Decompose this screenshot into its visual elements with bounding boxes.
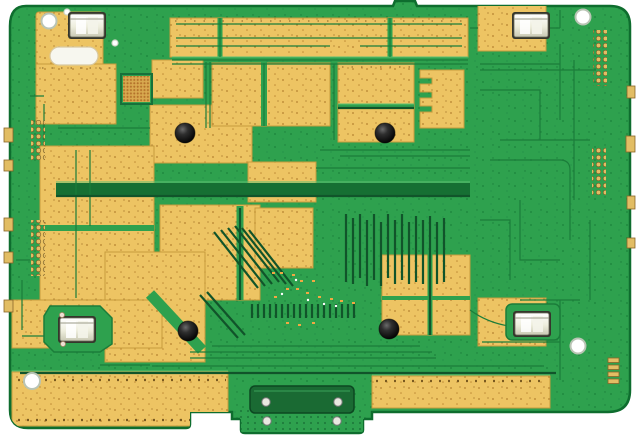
tooling-hole <box>112 40 118 46</box>
via-array <box>592 146 606 195</box>
shield-clip-connector <box>68 12 106 39</box>
copper-pour-region <box>152 60 203 98</box>
edge-pad <box>4 160 13 171</box>
mounting-hole <box>24 373 40 389</box>
rivet <box>334 398 342 406</box>
edge-pad <box>4 128 13 142</box>
shield-clip-connector <box>512 12 550 39</box>
shield-clip-connector <box>513 311 551 337</box>
edge-pad <box>4 218 13 231</box>
edge-pad <box>627 196 635 209</box>
rubber-grommet <box>379 319 399 339</box>
copper-pour-region <box>212 63 330 126</box>
via-array <box>31 120 45 162</box>
mounting-hole <box>571 339 586 354</box>
copper-pour-region <box>36 64 116 124</box>
via-array <box>31 220 45 276</box>
rubber-grommet <box>178 321 198 341</box>
edge-pad <box>608 365 619 370</box>
edge-pad <box>608 358 619 363</box>
rubber-grommet <box>175 123 195 143</box>
copper-pour-region <box>12 372 228 426</box>
edge-pad <box>627 86 635 98</box>
shield-clip-connector <box>58 313 96 347</box>
mounting-hole <box>42 14 57 29</box>
edge-pad <box>608 379 619 384</box>
via-array <box>593 30 607 86</box>
edge-pad <box>4 252 13 263</box>
edge-pad <box>608 372 619 377</box>
rubber-grommet <box>375 123 395 143</box>
copper-pour-region <box>255 208 313 268</box>
rivet <box>262 398 270 406</box>
edge-pad <box>4 300 13 312</box>
pcb-photo: Photograph of a bare green printed circu… <box>0 0 640 441</box>
edge-pad <box>626 136 635 152</box>
edge-pad <box>627 238 635 248</box>
copper-pour-region <box>372 376 550 408</box>
pcb-board-graphic <box>0 0 640 441</box>
rivet <box>333 417 341 425</box>
bare-metal-pad <box>50 47 98 65</box>
rivet <box>263 417 271 425</box>
bga-pad-array <box>121 74 152 104</box>
mounting-hole <box>576 10 591 25</box>
bottom-connector-tab <box>240 386 364 432</box>
